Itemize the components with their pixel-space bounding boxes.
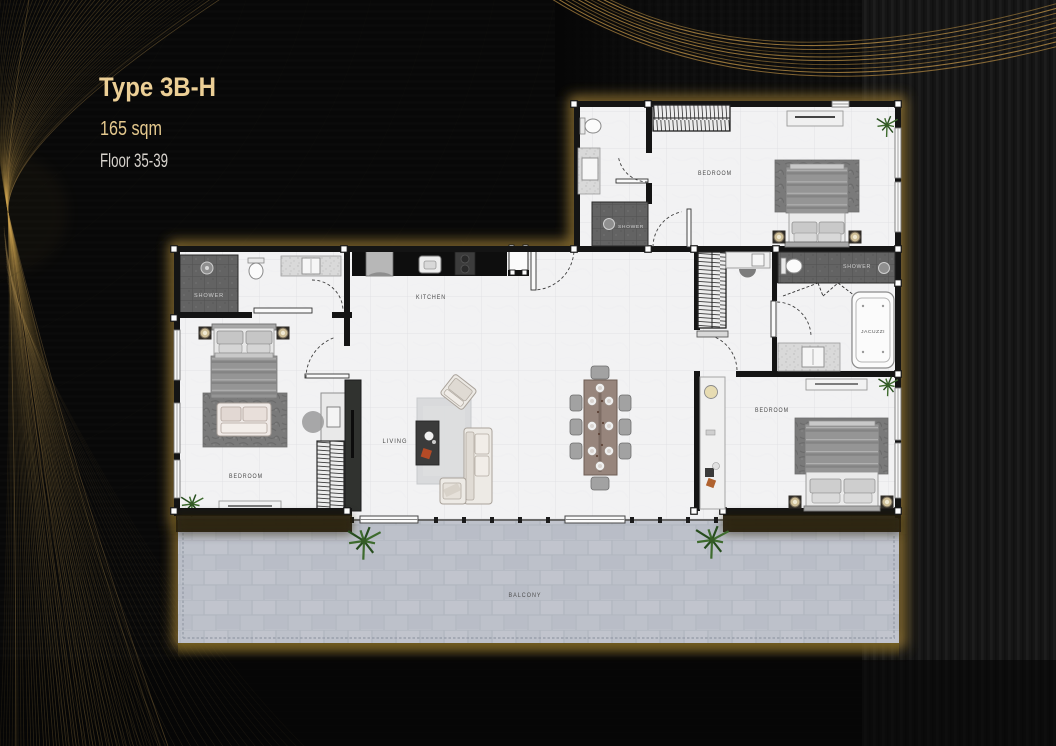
svg-text:SHOWER: SHOWER — [194, 293, 224, 299]
svg-text:LIVING: LIVING — [383, 438, 408, 445]
svg-text:BEDROOM: BEDROOM — [755, 407, 789, 414]
svg-text:BEDROOM: BEDROOM — [229, 473, 263, 480]
svg-text:BALCONY: BALCONY — [509, 592, 542, 599]
svg-text:165 sqm: 165 sqm — [100, 118, 162, 140]
svg-text:JACUZZI: JACUZZI — [861, 329, 885, 334]
svg-text:SHOWER: SHOWER — [843, 264, 871, 270]
svg-text:BEDROOM: BEDROOM — [698, 170, 732, 177]
svg-text:Type 3B-H: Type 3B-H — [99, 72, 216, 102]
svg-text:KITCHEN: KITCHEN — [416, 294, 446, 301]
svg-text:Floor 35-39: Floor 35-39 — [100, 151, 168, 172]
svg-text:SHOWER: SHOWER — [618, 224, 644, 230]
